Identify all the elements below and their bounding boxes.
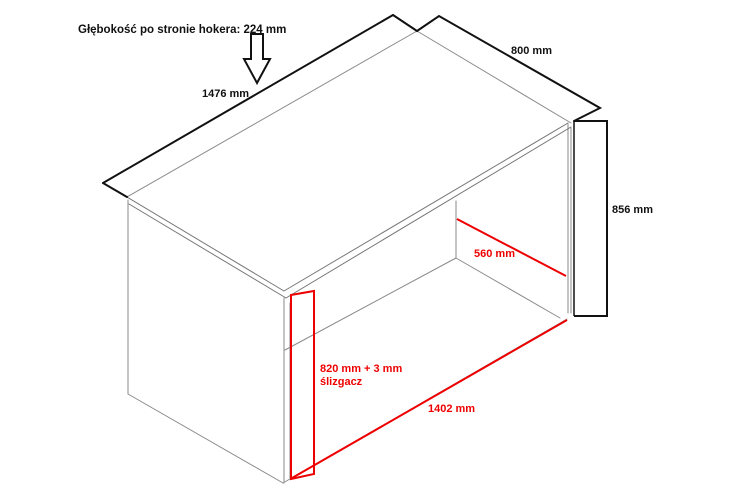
inner-width-label: 1402 mm	[428, 403, 475, 415]
tabletop-front-edge-lines	[127, 123, 571, 298]
hoker-depth-title: Głębokość po stronie hokera: 224 mm	[78, 24, 286, 36]
tabletop-outline	[103, 15, 600, 197]
top-length-label: 1476 mm	[202, 88, 249, 100]
furniture-isometric-drawing: Głębokość po stronie hokera: 224 mm 1476…	[0, 0, 750, 498]
inner-depth-label: 560 mm	[474, 248, 515, 260]
height-dimension-bracket	[574, 121, 607, 316]
inner-width-red-line	[292, 320, 567, 478]
inner-height-label-line2: ślizgacz	[320, 376, 363, 388]
highlight-dimension-lines	[291, 219, 567, 479]
side-height-label: 856 mm	[612, 204, 653, 216]
down-arrow-icon	[244, 34, 270, 83]
inner-height-label-line1: 820 mm + 3 mm	[320, 363, 402, 375]
top-depth-label: 800 mm	[511, 45, 552, 57]
inner-height-red-box	[291, 291, 314, 479]
dimension-diagram: Głębokość po stronie hokera: 224 mm 1476…	[0, 0, 750, 498]
